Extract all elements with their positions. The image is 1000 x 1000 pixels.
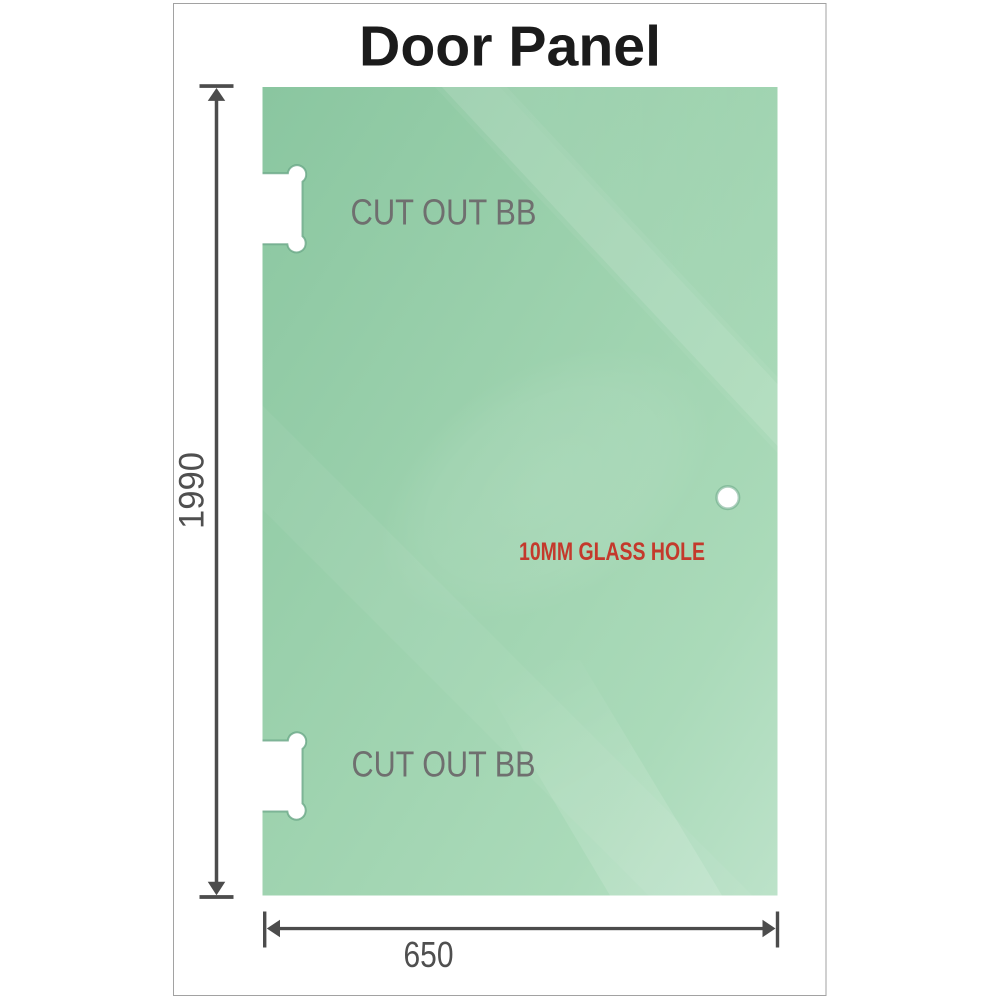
svg-text:1990: 1990	[173, 452, 212, 529]
svg-text:Door Panel: Door Panel	[359, 15, 661, 79]
svg-text:10MM GLASS HOLE: 10MM GLASS HOLE	[519, 538, 705, 566]
svg-text:CUT OUT BB: CUT OUT BB	[351, 191, 537, 232]
svg-text:650: 650	[404, 934, 454, 975]
svg-text:CUT OUT BB: CUT OUT BB	[352, 744, 536, 785]
